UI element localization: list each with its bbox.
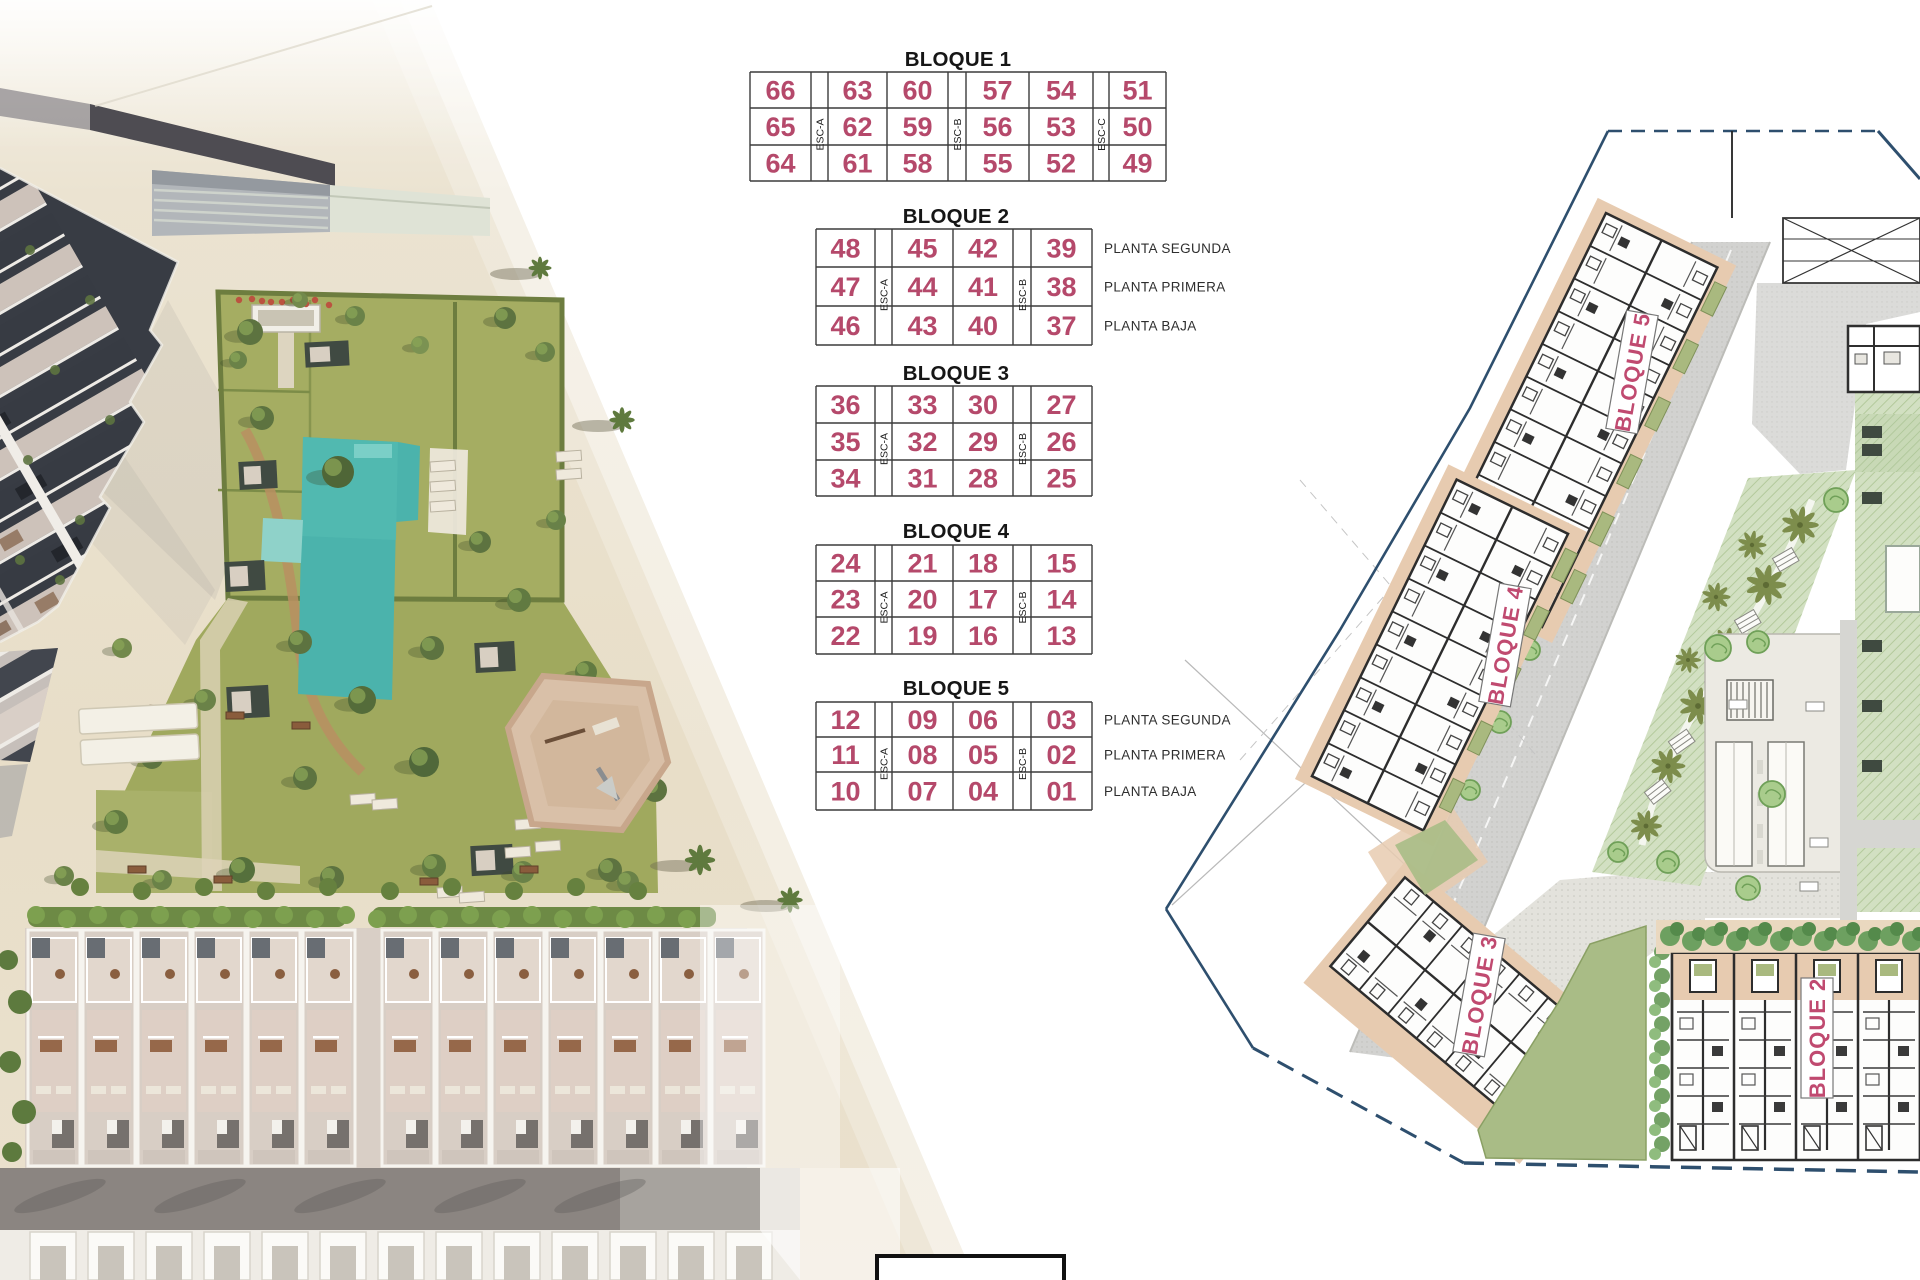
svg-text:PLANTA SEGUNDA: PLANTA SEGUNDA bbox=[1104, 713, 1231, 728]
svg-text:59: 59 bbox=[902, 112, 932, 142]
svg-text:47: 47 bbox=[830, 272, 860, 302]
svg-text:05: 05 bbox=[968, 740, 998, 770]
svg-text:08: 08 bbox=[907, 740, 937, 770]
svg-text:14: 14 bbox=[1046, 585, 1076, 615]
svg-text:BLOQUE 2: BLOQUE 2 bbox=[1805, 978, 1830, 1098]
svg-text:64: 64 bbox=[765, 149, 795, 179]
svg-text:24: 24 bbox=[830, 549, 860, 579]
svg-text:61: 61 bbox=[842, 149, 872, 179]
svg-text:ESC-A: ESC-A bbox=[879, 279, 891, 311]
svg-text:12: 12 bbox=[830, 705, 860, 735]
svg-text:26: 26 bbox=[1046, 427, 1076, 457]
svg-text:ESC-B: ESC-B bbox=[1017, 591, 1029, 623]
svg-text:18: 18 bbox=[968, 549, 998, 579]
svg-text:22: 22 bbox=[830, 621, 860, 651]
svg-text:57: 57 bbox=[982, 76, 1012, 106]
svg-text:36: 36 bbox=[830, 390, 860, 420]
svg-text:11: 11 bbox=[831, 740, 860, 770]
svg-text:37: 37 bbox=[1046, 311, 1076, 341]
svg-text:58: 58 bbox=[902, 149, 932, 179]
svg-text:BLOQUE 4: BLOQUE 4 bbox=[903, 520, 1010, 543]
svg-text:ESC-A: ESC-A bbox=[879, 748, 891, 780]
svg-text:03: 03 bbox=[1046, 705, 1076, 735]
svg-text:48: 48 bbox=[830, 234, 860, 264]
svg-text:66: 66 bbox=[765, 76, 795, 106]
svg-text:01: 01 bbox=[1046, 777, 1076, 807]
svg-text:04: 04 bbox=[968, 777, 998, 807]
svg-text:53: 53 bbox=[1046, 112, 1076, 142]
svg-text:BLOQUE 5: BLOQUE 5 bbox=[903, 677, 1009, 700]
svg-text:63: 63 bbox=[842, 76, 872, 106]
svg-text:20: 20 bbox=[907, 585, 937, 615]
svg-text:35: 35 bbox=[830, 427, 860, 457]
svg-text:10: 10 bbox=[830, 777, 860, 807]
svg-text:33: 33 bbox=[907, 390, 937, 420]
svg-text:02: 02 bbox=[1046, 740, 1076, 770]
svg-text:27: 27 bbox=[1046, 390, 1076, 420]
svg-text:PLANTA PRIMERA: PLANTA PRIMERA bbox=[1104, 748, 1226, 763]
svg-text:21: 21 bbox=[907, 549, 937, 579]
svg-text:09: 09 bbox=[907, 705, 937, 735]
svg-text:23: 23 bbox=[830, 585, 860, 615]
svg-text:17: 17 bbox=[968, 585, 998, 615]
svg-text:45: 45 bbox=[907, 234, 937, 264]
svg-text:55: 55 bbox=[982, 149, 1012, 179]
svg-text:PLANTA BAJA: PLANTA BAJA bbox=[1104, 319, 1197, 334]
svg-text:29: 29 bbox=[968, 427, 998, 457]
svg-text:54: 54 bbox=[1046, 76, 1076, 106]
svg-text:52: 52 bbox=[1046, 149, 1076, 179]
svg-text:38: 38 bbox=[1046, 272, 1076, 302]
svg-text:65: 65 bbox=[765, 112, 795, 142]
svg-text:ESC-A: ESC-A bbox=[879, 591, 891, 623]
svg-text:PLANTA SEGUNDA: PLANTA SEGUNDA bbox=[1104, 241, 1231, 256]
svg-text:PLANTA PRIMERA: PLANTA PRIMERA bbox=[1104, 280, 1226, 295]
svg-text:39: 39 bbox=[1046, 234, 1076, 264]
svg-text:ESC-B: ESC-B bbox=[1017, 748, 1029, 780]
svg-text:62: 62 bbox=[842, 112, 872, 142]
svg-text:PLANTA BAJA: PLANTA BAJA bbox=[1104, 784, 1197, 799]
svg-text:16: 16 bbox=[968, 621, 998, 651]
svg-text:41: 41 bbox=[968, 272, 998, 302]
svg-text:ESC-A: ESC-A bbox=[815, 118, 827, 150]
svg-text:15: 15 bbox=[1046, 549, 1076, 579]
svg-text:ESC-A: ESC-A bbox=[879, 433, 891, 465]
svg-text:13: 13 bbox=[1046, 621, 1076, 651]
svg-text:50: 50 bbox=[1122, 112, 1152, 142]
svg-text:ESC-C: ESC-C bbox=[1096, 118, 1108, 151]
svg-text:ESC-B: ESC-B bbox=[1017, 279, 1029, 311]
svg-text:BLOQUE 2: BLOQUE 2 bbox=[903, 205, 1009, 228]
svg-text:BLOQUE 3: BLOQUE 3 bbox=[903, 362, 1009, 385]
svg-text:43: 43 bbox=[907, 311, 937, 341]
svg-text:31: 31 bbox=[907, 464, 937, 494]
svg-text:40: 40 bbox=[968, 311, 998, 341]
svg-text:30: 30 bbox=[968, 390, 998, 420]
svg-text:51: 51 bbox=[1122, 76, 1152, 106]
svg-text:34: 34 bbox=[830, 464, 860, 494]
svg-text:06: 06 bbox=[968, 705, 998, 735]
svg-text:ESC-B: ESC-B bbox=[952, 118, 964, 150]
svg-text:07: 07 bbox=[907, 777, 937, 807]
svg-text:ESC-B: ESC-B bbox=[1017, 433, 1029, 465]
svg-text:BLOQUE 1: BLOQUE 1 bbox=[905, 48, 1011, 71]
svg-text:49: 49 bbox=[1122, 149, 1152, 179]
svg-text:44: 44 bbox=[907, 272, 937, 302]
svg-text:25: 25 bbox=[1046, 464, 1076, 494]
svg-text:60: 60 bbox=[902, 76, 932, 106]
svg-text:56: 56 bbox=[982, 112, 1012, 142]
svg-text:46: 46 bbox=[830, 311, 860, 341]
svg-text:32: 32 bbox=[907, 427, 937, 457]
svg-text:19: 19 bbox=[907, 621, 937, 651]
svg-text:42: 42 bbox=[968, 234, 998, 264]
svg-text:28: 28 bbox=[968, 464, 998, 494]
